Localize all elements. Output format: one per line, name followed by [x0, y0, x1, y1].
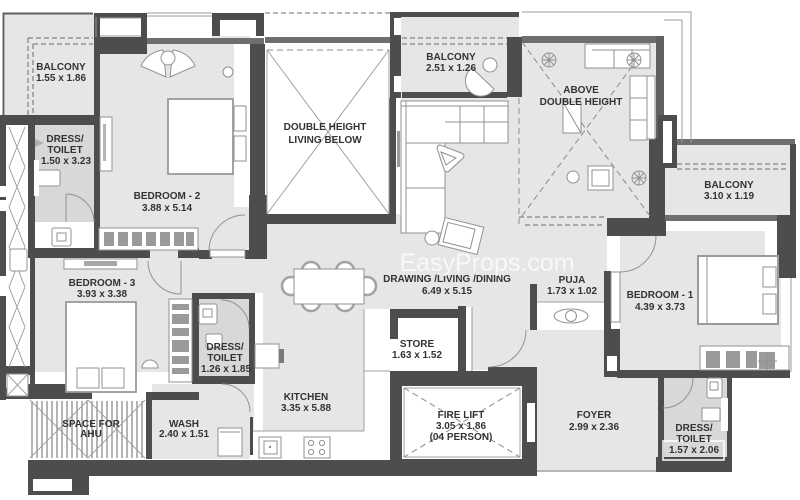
svg-text:1.50 x 3.23: 1.50 x 3.23	[41, 156, 91, 167]
svg-text:2.40 x 1.51: 2.40 x 1.51	[159, 429, 209, 440]
svg-text:LIVING BELOW: LIVING BELOW	[288, 135, 362, 146]
svg-text:BEDROOM - 2: BEDROOM - 2	[134, 191, 201, 202]
svg-text:1.55 x 1.86: 1.55 x 1.86	[36, 73, 86, 84]
svg-text:DOUBLE HEIGHT: DOUBLE HEIGHT	[540, 97, 623, 108]
svg-text:TOILET: TOILET	[676, 434, 711, 445]
svg-text:2.51 x 1.26: 2.51 x 1.26	[426, 63, 476, 74]
svg-text:ABOVE: ABOVE	[563, 85, 599, 96]
svg-text:STORE: STORE	[400, 339, 435, 350]
svg-text:(04 PERSON): (04 PERSON)	[430, 432, 493, 443]
svg-text:EasyProps.com: EasyProps.com	[399, 249, 574, 277]
svg-text:2.99 x 2.36: 2.99 x 2.36	[569, 422, 619, 433]
svg-text:DRESS/: DRESS/	[206, 342, 243, 353]
svg-text:4.39 x 3.73: 4.39 x 3.73	[635, 302, 685, 313]
svg-text:3.05 x 1.86: 3.05 x 1.86	[436, 421, 486, 432]
svg-text:KITCHEN: KITCHEN	[284, 392, 328, 403]
svg-text:BEDROOM - 1: BEDROOM - 1	[627, 290, 694, 301]
svg-text:1.26 x 1.85: 1.26 x 1.85	[201, 364, 251, 375]
svg-text:3.93 x 3.38: 3.93 x 3.38	[77, 289, 127, 300]
svg-text:3.35 x 5.88: 3.35 x 5.88	[281, 403, 331, 414]
svg-text:1.57 x 2.06: 1.57 x 2.06	[669, 445, 719, 456]
svg-text:DRESS/: DRESS/	[46, 134, 83, 145]
svg-text:3.10 x 1.19: 3.10 x 1.19	[704, 191, 754, 202]
svg-text:1.63 x 1.52: 1.63 x 1.52	[392, 350, 442, 361]
svg-text:FIRE LIFT: FIRE LIFT	[438, 410, 485, 421]
svg-text:BALCONY: BALCONY	[426, 52, 476, 63]
svg-text:BEDROOM - 3: BEDROOM - 3	[69, 278, 136, 289]
svg-text:1.73 x 1.02: 1.73 x 1.02	[547, 286, 597, 297]
svg-text:6.49 x 5.15: 6.49 x 5.15	[422, 286, 472, 297]
svg-text:TOILET: TOILET	[207, 353, 242, 364]
svg-text:DOUBLE HEIGHT: DOUBLE HEIGHT	[284, 122, 367, 133]
svg-text:FOYER: FOYER	[577, 410, 612, 421]
svg-text:BALCONY: BALCONY	[36, 62, 86, 73]
svg-text:BALCONY: BALCONY	[704, 180, 754, 191]
svg-text:3.88 x 5.14: 3.88 x 5.14	[142, 203, 192, 214]
svg-text:AHU: AHU	[80, 429, 102, 440]
svg-text:DRESS/: DRESS/	[675, 423, 712, 434]
svg-text:TOILET: TOILET	[47, 145, 82, 156]
